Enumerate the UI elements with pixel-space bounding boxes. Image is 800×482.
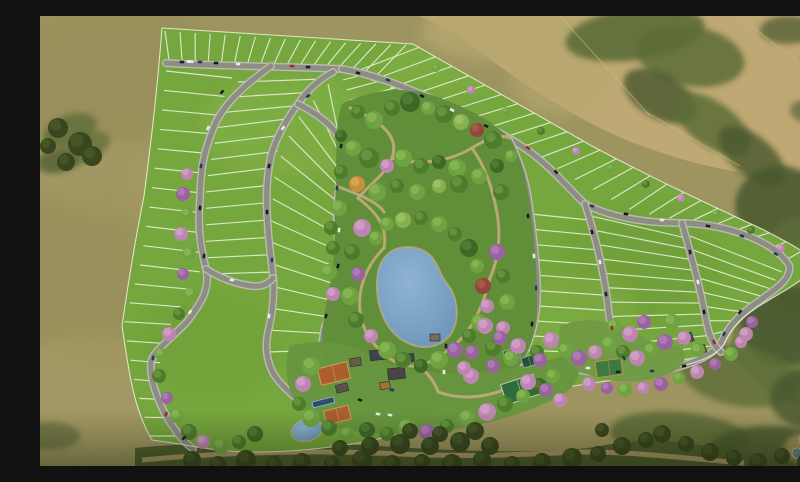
car <box>198 61 203 64</box>
tree <box>395 352 411 368</box>
car <box>180 61 185 64</box>
bus <box>186 60 194 63</box>
tree <box>622 326 638 342</box>
tree <box>324 221 338 235</box>
tree <box>520 374 536 390</box>
tree <box>558 343 572 357</box>
tree <box>475 278 491 294</box>
tree <box>326 287 340 301</box>
tree <box>162 327 176 341</box>
tree <box>395 212 411 228</box>
tree <box>369 231 383 245</box>
tree <box>712 210 720 218</box>
tree <box>400 92 420 112</box>
tree <box>341 287 359 305</box>
tree <box>335 130 347 142</box>
tree <box>365 111 383 129</box>
car <box>445 344 448 349</box>
car <box>586 367 591 370</box>
tree <box>664 314 680 330</box>
car <box>268 314 271 319</box>
tree <box>345 140 361 156</box>
tree <box>353 219 371 237</box>
tree <box>432 179 446 193</box>
tree <box>553 393 567 407</box>
tree <box>637 382 649 394</box>
car <box>624 213 629 216</box>
tree <box>331 200 347 216</box>
tree <box>155 348 167 360</box>
tree <box>348 312 364 328</box>
tree <box>432 64 440 72</box>
tree <box>394 149 412 167</box>
tree <box>493 331 507 345</box>
tree <box>537 127 545 135</box>
tree <box>484 131 502 149</box>
tree <box>497 396 513 412</box>
tree <box>642 180 650 188</box>
tree <box>543 332 559 348</box>
tree <box>414 211 428 225</box>
tree <box>390 179 404 193</box>
tree <box>607 319 621 333</box>
car <box>531 322 534 327</box>
tree <box>378 341 396 359</box>
tree <box>460 239 478 257</box>
tree <box>490 159 504 173</box>
tree <box>302 357 320 375</box>
car <box>199 206 202 211</box>
tree <box>654 377 668 391</box>
car <box>616 371 621 374</box>
sports-court <box>595 358 623 377</box>
tree <box>184 287 198 301</box>
tree <box>321 264 337 280</box>
car <box>533 254 536 259</box>
tree <box>414 359 428 373</box>
tree <box>471 168 487 184</box>
tree <box>447 342 463 358</box>
tree <box>161 392 173 404</box>
car <box>535 286 538 291</box>
tree <box>601 336 617 352</box>
tree <box>618 383 632 397</box>
tree <box>453 114 469 130</box>
tree <box>457 361 471 375</box>
tree <box>413 158 429 174</box>
tree <box>344 244 360 260</box>
tree <box>380 159 394 173</box>
tree <box>450 175 468 193</box>
masterplan-aerial-render <box>40 16 800 466</box>
tree <box>502 107 510 115</box>
tree <box>292 397 306 411</box>
tree <box>431 216 447 232</box>
tree <box>601 382 613 394</box>
tree <box>480 299 494 313</box>
tree <box>516 389 530 403</box>
tree <box>629 350 645 366</box>
tree <box>359 148 379 168</box>
tree <box>539 383 553 397</box>
tree <box>505 150 517 162</box>
car <box>336 186 339 191</box>
tree <box>295 376 311 392</box>
tree <box>421 101 435 115</box>
tree <box>351 105 365 119</box>
tree <box>499 294 515 310</box>
tree <box>182 247 196 261</box>
car <box>230 279 235 282</box>
car <box>338 228 341 233</box>
car <box>660 219 665 222</box>
tree <box>448 159 466 177</box>
car <box>443 370 446 375</box>
tree <box>777 244 785 252</box>
tree <box>747 226 755 234</box>
tree <box>588 345 602 359</box>
tree <box>48 118 68 138</box>
car <box>290 65 295 68</box>
tree <box>486 359 500 373</box>
tree <box>82 146 102 166</box>
tree <box>384 100 400 116</box>
tree <box>724 347 738 361</box>
tree <box>177 268 189 280</box>
tree <box>435 105 453 123</box>
tree <box>432 155 446 169</box>
car <box>266 210 269 215</box>
tree <box>691 343 705 357</box>
car <box>527 214 530 219</box>
car <box>236 63 241 66</box>
tree <box>349 176 365 192</box>
tree <box>533 353 547 367</box>
tree <box>364 329 378 343</box>
car <box>390 389 395 392</box>
tree <box>677 331 691 345</box>
tree <box>326 241 340 255</box>
tree <box>644 343 658 357</box>
tree <box>174 227 188 241</box>
tree <box>173 308 185 320</box>
tree <box>380 217 394 231</box>
tree <box>673 372 685 384</box>
clubhouse-building <box>387 367 405 380</box>
car <box>214 62 219 65</box>
creek-shadow-overlay <box>40 411 800 466</box>
car <box>650 370 655 373</box>
tree <box>152 369 166 383</box>
masterplan-svg <box>40 16 800 466</box>
tree <box>709 358 721 370</box>
tree <box>571 350 587 366</box>
tree <box>677 194 685 202</box>
tree <box>430 351 448 369</box>
tree <box>351 267 365 281</box>
tree <box>582 377 596 391</box>
tree <box>477 318 493 334</box>
tree <box>181 208 193 220</box>
tree <box>637 315 651 329</box>
tree <box>496 269 510 283</box>
tree <box>607 164 615 172</box>
tree <box>546 369 560 383</box>
tree <box>690 365 704 379</box>
clubhouse-building <box>380 381 391 389</box>
clubhouse-building <box>350 357 362 366</box>
clubhouse-building <box>430 334 440 341</box>
tree <box>409 184 425 200</box>
tree <box>470 259 484 273</box>
tree <box>739 327 753 341</box>
tree <box>40 138 56 154</box>
tree <box>462 329 476 343</box>
tree <box>448 227 462 241</box>
tree <box>489 244 505 260</box>
tree <box>465 345 479 359</box>
tree <box>334 165 348 179</box>
tree <box>57 153 75 171</box>
tree <box>746 316 758 328</box>
tree <box>176 187 190 201</box>
tree <box>368 183 386 201</box>
tree <box>181 168 193 180</box>
tree <box>467 86 475 94</box>
car <box>152 356 155 361</box>
tree <box>493 184 509 200</box>
tree <box>470 123 484 137</box>
tree <box>572 147 580 155</box>
tree <box>657 334 673 350</box>
tree <box>510 338 526 354</box>
car <box>306 66 311 69</box>
